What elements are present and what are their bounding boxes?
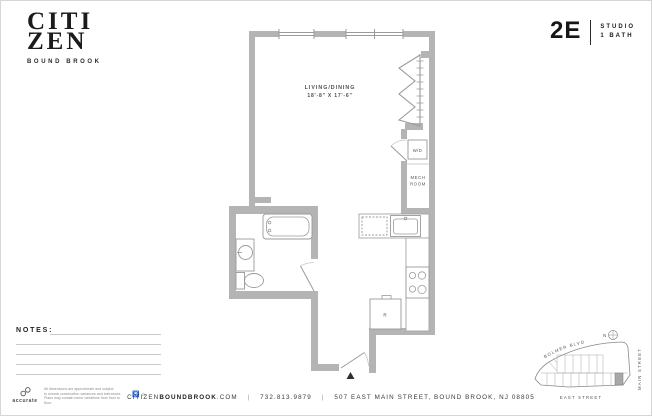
notes-line: [16, 354, 161, 355]
room-label: LIVING/DINING 18'-8" X 17'-6": [305, 85, 356, 99]
walls: [229, 31, 435, 373]
footer-phone: 732.813.9879: [260, 394, 312, 401]
dishwasher-box: [362, 217, 387, 235]
svg-text:MECH: MECH: [410, 175, 425, 180]
notes-line: [16, 344, 161, 345]
wd-label: W/D: [413, 148, 423, 153]
footer: CITIZENBOUNDBROOK.COM | 732.813.9879 | 5…: [121, 394, 541, 401]
footer-separator: |: [248, 394, 251, 401]
window-bay: [399, 54, 424, 126]
accurate-logo-icon: [19, 387, 32, 397]
wd-closet: W/D: [391, 140, 429, 164]
notes-line: [16, 374, 161, 375]
footer-website: CITIZENBOUNDBROOK.COM: [127, 394, 238, 401]
notes-label: NOTES:: [16, 327, 53, 334]
footer-separator: |: [322, 394, 325, 401]
svg-text:ROOM: ROOM: [410, 182, 426, 187]
toilet: [236, 273, 264, 290]
compass-icon: N: [603, 331, 618, 340]
bathroom: [236, 214, 314, 291]
entry-door: [341, 353, 369, 369]
room-name: LIVING/DINING: [305, 85, 356, 91]
vanity-sink: [236, 239, 254, 271]
entry-arrow-icon: [347, 372, 355, 379]
wd-door: [391, 146, 407, 161]
mech-room-label: MECH ROOM: [410, 175, 426, 187]
notes-line: [50, 334, 161, 335]
accurate-label: accurate: [12, 398, 37, 404]
bathroom-door: [301, 263, 315, 292]
street-label-bottom: EAST STREET: [560, 395, 603, 400]
room-dims: 18'-8" X 17'-6": [307, 93, 352, 99]
stove: [406, 267, 429, 298]
accurate-logo: accurate: [12, 387, 38, 404]
kitchen: R: [359, 214, 429, 331]
floorplan-sheet: CITI ZEN BOUND BROOK 2E STUDIO 1 BATH: [0, 0, 652, 416]
notes-line: [16, 364, 161, 365]
kitchen-sink: [391, 216, 421, 237]
footer-address: 507 EAST MAIN STREET, BOUND BROOK, NJ 08…: [334, 394, 534, 401]
disclaimer-text: All dimensions are approximate and subje…: [44, 387, 126, 406]
refrigerator: R: [370, 296, 401, 330]
bathtub: [263, 214, 312, 239]
compass-n-label: N: [603, 333, 606, 338]
street-label-right: MAIN STREET: [637, 348, 642, 390]
unit-location-highlight: [615, 373, 623, 385]
site-key-map: BOLMER BLVD N MAIN STREET EAST STREET: [529, 327, 651, 413]
